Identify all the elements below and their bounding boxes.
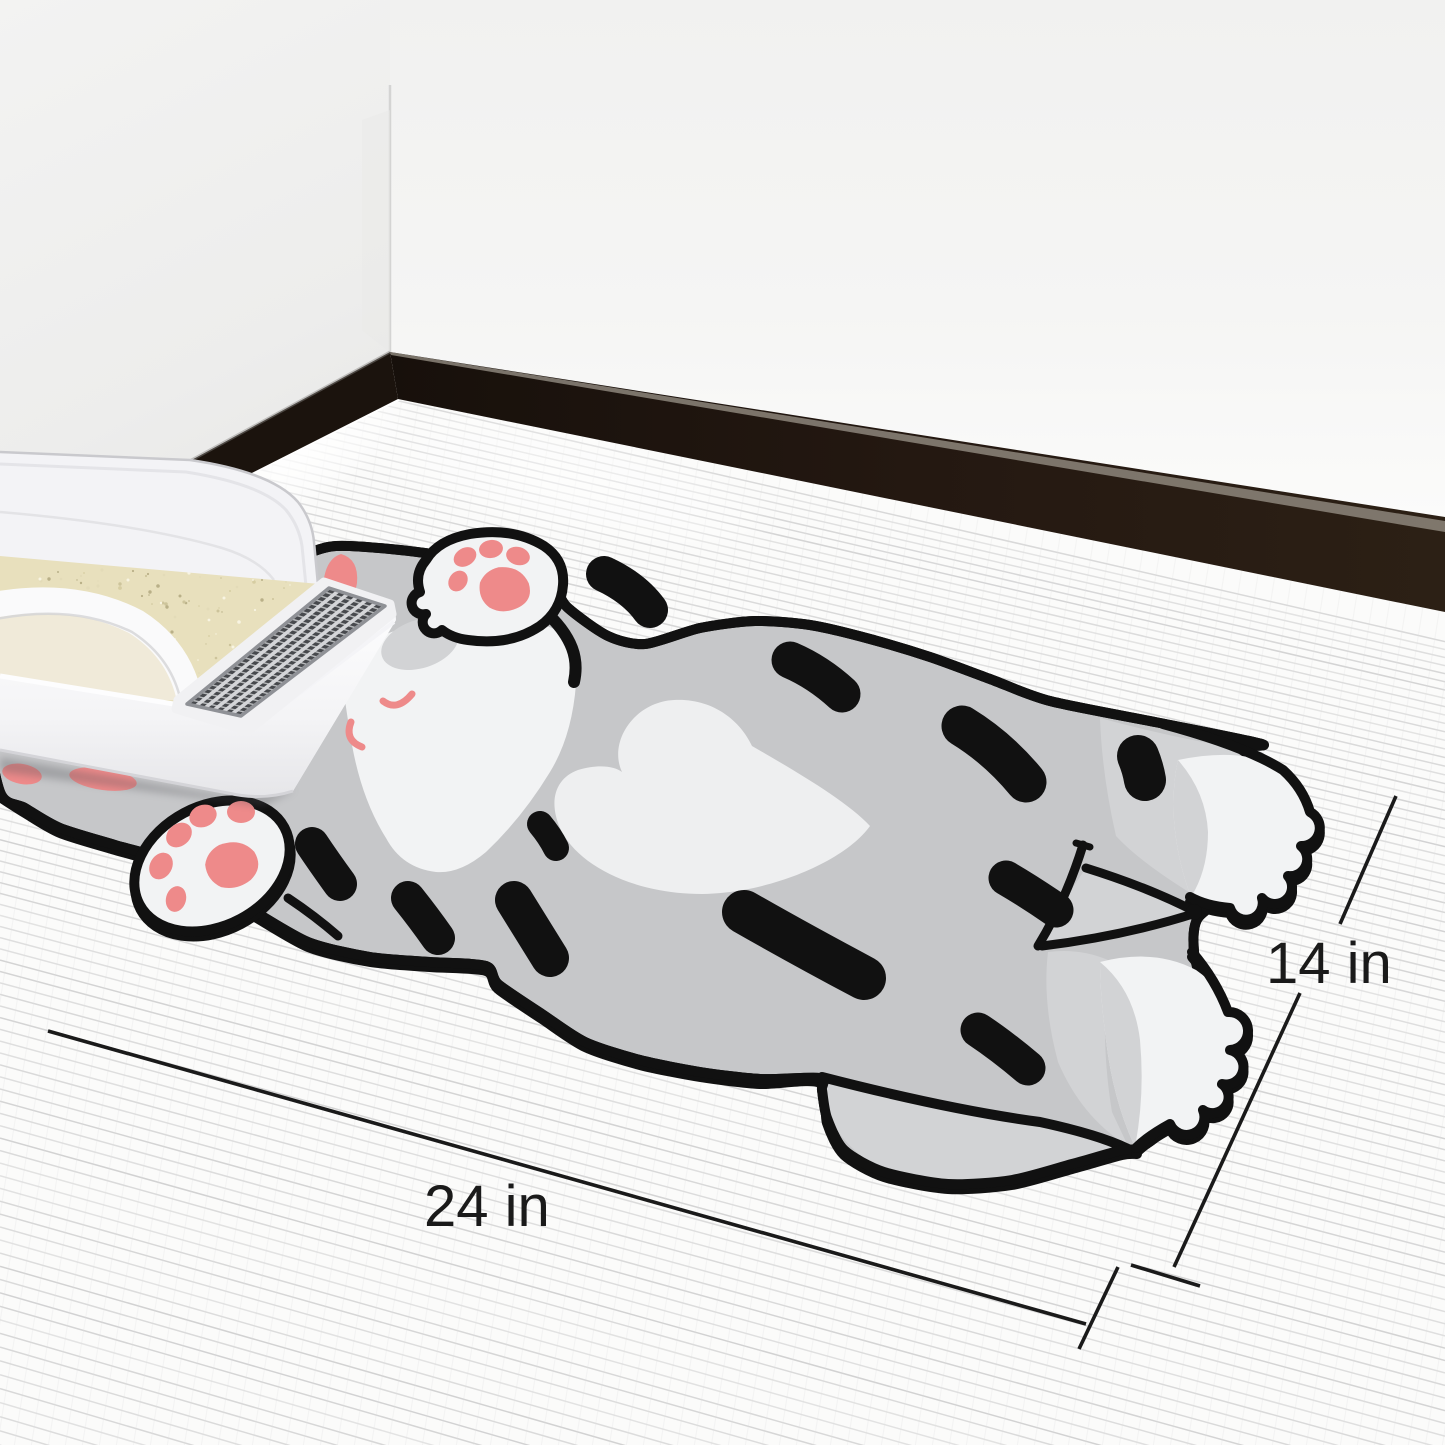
svg-text:24 in: 24 in	[424, 1174, 550, 1239]
svg-text:14 in: 14 in	[1266, 931, 1392, 996]
